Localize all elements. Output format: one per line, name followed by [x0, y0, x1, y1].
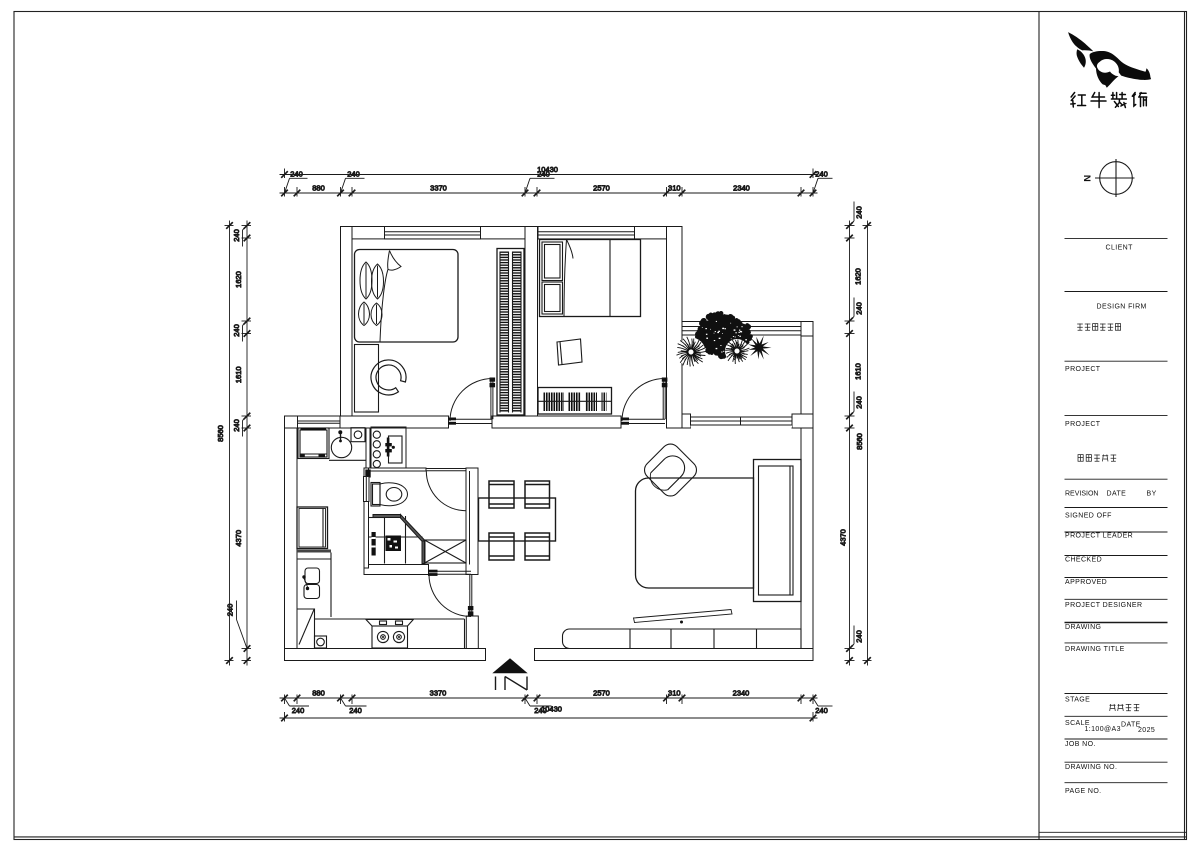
svg-text:1:100@A3: 1:100@A3: [1085, 726, 1121, 733]
svg-text:2570: 2570: [593, 688, 610, 697]
svg-text:240: 240: [815, 706, 828, 715]
svg-text:DRAWING TITLE: DRAWING TITLE: [1065, 646, 1125, 653]
svg-text:310: 310: [668, 688, 681, 697]
svg-text:1620: 1620: [854, 268, 863, 285]
svg-text:DESIGN FIRM: DESIGN FIRM: [1097, 304, 1147, 311]
svg-text:1610: 1610: [854, 363, 863, 380]
svg-text:240: 240: [855, 206, 864, 219]
svg-text:240: 240: [349, 706, 362, 715]
svg-text:STAGE: STAGE: [1065, 697, 1090, 704]
svg-text:240: 240: [815, 170, 828, 179]
svg-text:DRAWING NO.: DRAWING NO.: [1065, 764, 1117, 771]
svg-text:APPROVED: APPROVED: [1065, 579, 1107, 586]
svg-text:PROJECT LEADER: PROJECT LEADER: [1065, 533, 1133, 540]
svg-text:880: 880: [312, 183, 325, 192]
svg-text:2340: 2340: [733, 183, 750, 192]
svg-text:BY: BY: [1147, 491, 1157, 498]
svg-text:SIGNED OFF: SIGNED OFF: [1065, 513, 1112, 520]
svg-text:1620: 1620: [234, 271, 243, 288]
svg-text:PAGE NO.: PAGE NO.: [1065, 788, 1102, 795]
svg-text:240: 240: [537, 170, 550, 179]
svg-text:4370: 4370: [234, 530, 243, 547]
svg-text:3370: 3370: [430, 183, 447, 192]
svg-text:8560: 8560: [216, 425, 225, 442]
svg-text:2025: 2025: [1138, 727, 1155, 734]
svg-text:CHECKED: CHECKED: [1065, 557, 1102, 564]
svg-text:PROJECT DESIGNER: PROJECT DESIGNER: [1065, 602, 1142, 609]
svg-text:JOB NO.: JOB NO.: [1065, 741, 1096, 748]
svg-text:2340: 2340: [733, 688, 750, 697]
svg-text:DRAWING: DRAWING: [1065, 624, 1101, 631]
svg-text:240: 240: [232, 229, 241, 242]
svg-text:240: 240: [347, 170, 360, 179]
svg-text:240: 240: [290, 170, 303, 179]
svg-text:3370: 3370: [430, 688, 447, 697]
svg-text:240: 240: [226, 604, 235, 617]
svg-text:2570: 2570: [593, 183, 610, 192]
svg-text:4370: 4370: [839, 529, 848, 546]
svg-text:PROJECT: PROJECT: [1065, 421, 1101, 428]
svg-text:CLIENT: CLIENT: [1106, 245, 1134, 252]
svg-text:240: 240: [292, 706, 305, 715]
svg-text:8560: 8560: [855, 433, 864, 450]
svg-text:N: N: [1083, 175, 1094, 182]
svg-text:240: 240: [232, 324, 241, 337]
svg-text:240: 240: [855, 302, 864, 315]
svg-text:240: 240: [855, 396, 864, 409]
svg-text:240: 240: [855, 630, 864, 643]
svg-text:REVISION: REVISION: [1065, 491, 1098, 498]
svg-text:PROJECT: PROJECT: [1065, 366, 1101, 373]
svg-text:880: 880: [312, 688, 325, 697]
svg-text:10430: 10430: [541, 705, 562, 714]
svg-text:240: 240: [232, 419, 241, 432]
svg-text:1610: 1610: [234, 366, 243, 383]
svg-text:310: 310: [668, 183, 681, 192]
svg-text:DATE: DATE: [1107, 491, 1127, 498]
